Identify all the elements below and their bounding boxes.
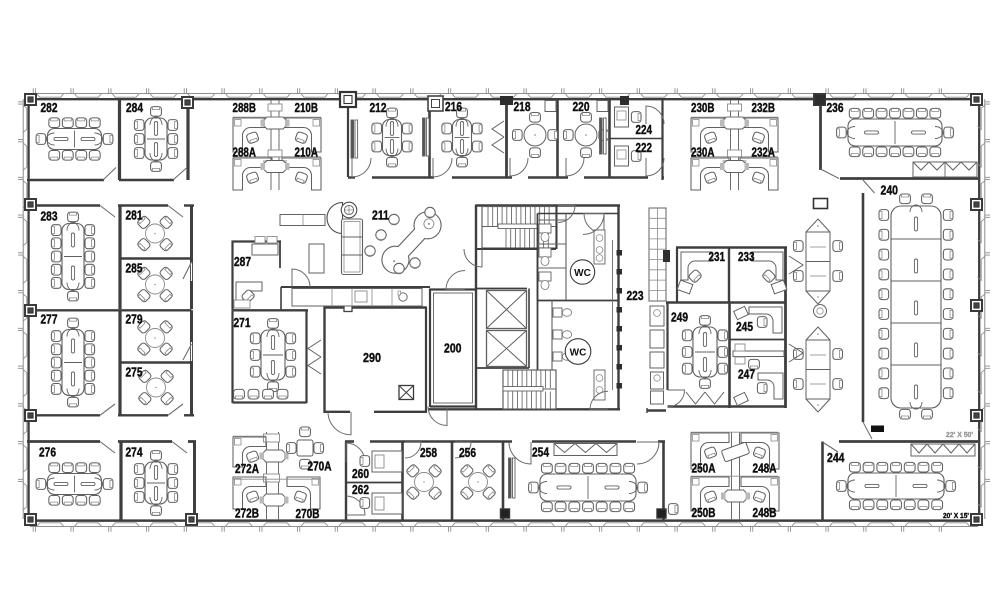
svg-text:281: 281 — [126, 209, 143, 223]
svg-text:244: 244 — [827, 451, 845, 465]
svg-text:223: 223 — [627, 289, 644, 303]
svg-text:240: 240 — [881, 184, 899, 198]
svg-text:274: 274 — [126, 446, 143, 460]
svg-text:230A: 230A — [691, 146, 715, 160]
svg-text:270B: 270B — [296, 507, 320, 521]
svg-text:249: 249 — [671, 311, 688, 325]
svg-text:272A: 272A — [235, 462, 259, 476]
svg-text:230B: 230B — [691, 101, 715, 115]
svg-text:224: 224 — [636, 123, 653, 137]
svg-text:211: 211 — [372, 209, 389, 223]
svg-text:262: 262 — [352, 483, 369, 497]
svg-text:216: 216 — [445, 100, 462, 114]
svg-text:210B: 210B — [295, 101, 319, 115]
svg-text:232B: 232B — [752, 101, 776, 115]
svg-text:285: 285 — [126, 262, 143, 276]
svg-text:254: 254 — [532, 446, 549, 460]
svg-text:287: 287 — [234, 255, 251, 269]
svg-text:288B: 288B — [233, 101, 257, 115]
svg-text:WC: WC — [574, 268, 591, 279]
svg-text:290: 290 — [363, 351, 381, 365]
svg-text:248A: 248A — [753, 462, 777, 476]
svg-text:22' X 50': 22' X 50' — [946, 430, 973, 439]
svg-text:233: 233 — [738, 250, 755, 264]
svg-text:272B: 272B — [235, 507, 259, 521]
svg-text:236: 236 — [827, 101, 844, 115]
svg-text:212: 212 — [370, 101, 387, 115]
svg-text:288A: 288A — [233, 146, 257, 160]
svg-text:250A: 250A — [692, 462, 716, 476]
svg-text:276: 276 — [39, 446, 56, 460]
svg-text:248B: 248B — [753, 506, 777, 520]
svg-text:200: 200 — [444, 342, 462, 356]
svg-text:260: 260 — [352, 467, 369, 481]
svg-text:283: 283 — [41, 210, 58, 224]
svg-text:218: 218 — [514, 100, 531, 114]
svg-text:284: 284 — [126, 101, 143, 115]
svg-text:220: 220 — [573, 100, 590, 114]
svg-text:245: 245 — [736, 320, 753, 334]
svg-text:247: 247 — [738, 368, 755, 382]
svg-text:279: 279 — [126, 313, 143, 327]
svg-text:275: 275 — [126, 366, 143, 380]
svg-text:271: 271 — [234, 316, 251, 330]
svg-text:256: 256 — [459, 446, 476, 460]
svg-text:WC: WC — [570, 348, 587, 359]
svg-text:20' X 15': 20' X 15' — [943, 511, 969, 520]
svg-text:250B: 250B — [692, 506, 716, 520]
svg-text:210A: 210A — [295, 146, 319, 160]
svg-text:232A: 232A — [752, 146, 776, 160]
svg-text:270A: 270A — [308, 460, 332, 474]
svg-text:258: 258 — [420, 446, 437, 460]
svg-text:231: 231 — [709, 250, 726, 264]
svg-text:277: 277 — [41, 313, 58, 327]
svg-text:282: 282 — [41, 101, 58, 115]
svg-text:222: 222 — [636, 141, 653, 155]
